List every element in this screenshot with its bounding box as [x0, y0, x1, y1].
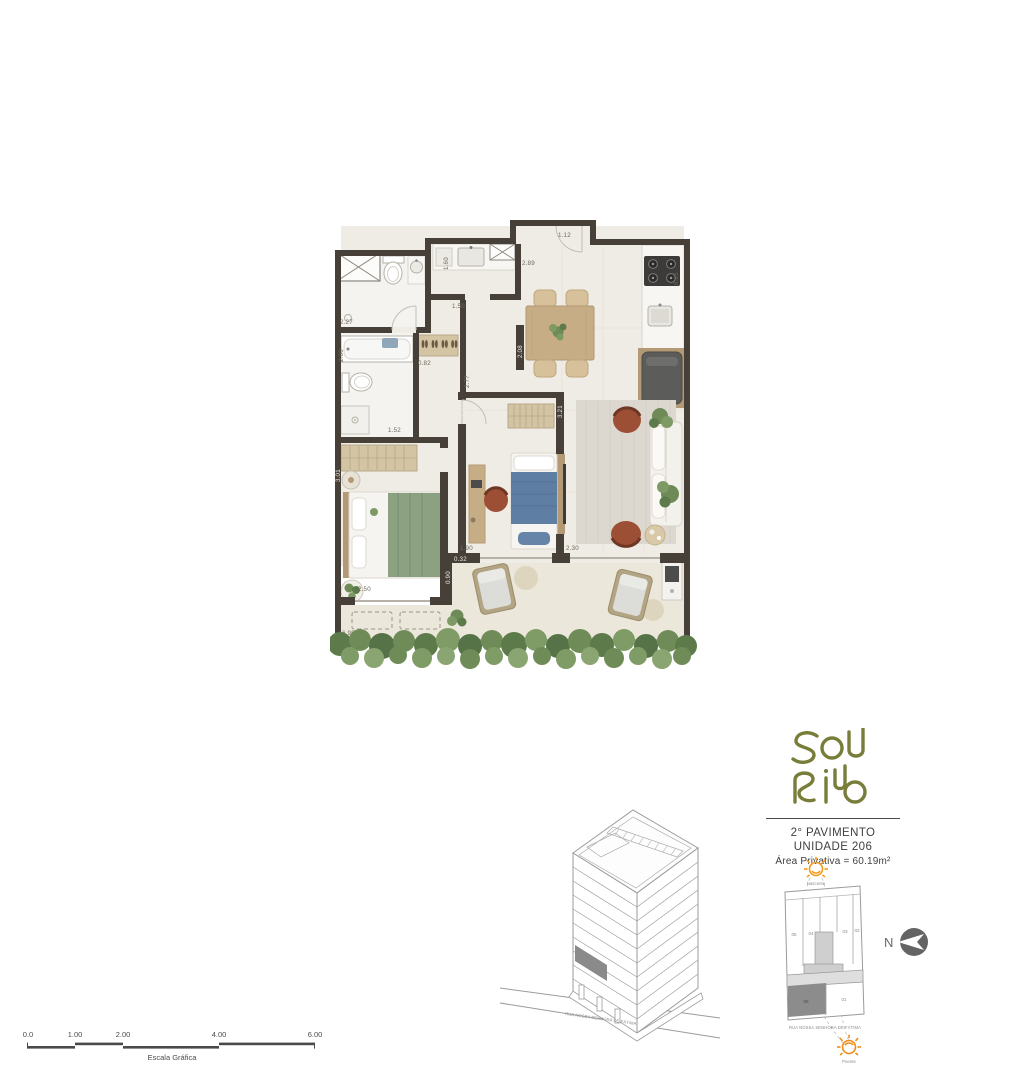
- scale-bar: [27, 1043, 315, 1049]
- dim-label: 2.30: [566, 545, 579, 552]
- logo-letter-u: [835, 766, 845, 789]
- dim-label: 1.52: [388, 427, 401, 434]
- laundry-sink: [458, 248, 484, 266]
- unit-number: 03: [842, 929, 848, 934]
- dim-label: 3.10: [459, 405, 466, 418]
- dim-label: 3.21: [557, 405, 564, 418]
- unit-label: UNIDADE 206: [758, 840, 908, 854]
- dining-chair: [566, 290, 588, 307]
- building-drawing: RUA NOSSA SENHORA DE FÁTIMA: [495, 785, 730, 1055]
- dim-label: 2.00: [338, 349, 345, 362]
- single-bed: [511, 453, 557, 549]
- dining-chair: [534, 360, 556, 377]
- pillow: [514, 456, 554, 470]
- logo-letter-s: [793, 733, 817, 762]
- armchair: [613, 407, 641, 433]
- desk-chair: [484, 488, 508, 512]
- unit-number-highlighted: 06: [803, 999, 809, 1004]
- headboard: [343, 492, 349, 578]
- core: [815, 932, 833, 966]
- nightstand: [342, 471, 360, 489]
- towel: [382, 338, 398, 348]
- armchair: [611, 521, 641, 547]
- dim-label: 2.89: [522, 260, 535, 267]
- scale-tick: 4.00: [212, 1030, 227, 1039]
- scale-tick: 1.00: [68, 1030, 83, 1039]
- info-panel: SOL RIO 2° PAVIMENTO UNIDADE 206 Área Pr…: [758, 728, 908, 867]
- dim-label: 0.32: [454, 556, 467, 563]
- north-arrow-icon: [898, 928, 928, 956]
- sun-nascente-icon: [804, 857, 828, 877]
- dim-label: 2.77: [464, 375, 471, 388]
- pillow: [352, 536, 366, 568]
- grill-counter: [662, 562, 682, 600]
- laptop: [471, 480, 482, 488]
- bed-plant-deco: [370, 508, 378, 516]
- sofa: [650, 422, 682, 526]
- dim-label: 1.90: [460, 545, 473, 552]
- scale-caption: Escala Gráfica: [148, 1053, 198, 1062]
- logo-letter-o2: [845, 782, 865, 802]
- sun-nascente-label: Nascente: [807, 881, 826, 886]
- toilet: [342, 373, 372, 392]
- scale-tick: 0.0: [23, 1030, 33, 1039]
- round-rug: [514, 566, 538, 590]
- blue-duvet: [511, 472, 557, 524]
- dim-label: 1.12: [558, 232, 571, 239]
- sol-rio-logo: SOL RIO: [789, 728, 877, 806]
- key-plan-outline: [785, 886, 864, 1020]
- scale-ticks: 0.0 1.00 2.00 4.00 6.00: [23, 1030, 323, 1039]
- green-blanket: [388, 493, 441, 577]
- dim-label: 1.50: [452, 303, 465, 310]
- north-label: N: [884, 935, 893, 950]
- key-plan-street-label: RUA NOSSA SENHORA DE FÁTIMA: [789, 1025, 861, 1030]
- unit-number: 04: [808, 931, 814, 936]
- side-table: [645, 525, 665, 545]
- unit-number: 02: [854, 928, 860, 933]
- logo-letter-r: [795, 773, 814, 802]
- logo-letter-o: [822, 738, 842, 758]
- unit-number: 05: [791, 932, 797, 937]
- logo-letter-l: [849, 729, 863, 756]
- logo-i-dot: [824, 769, 828, 773]
- unit-number: 01: [841, 997, 847, 1002]
- dining-chair: [534, 290, 556, 307]
- sun-poente-label: Poente: [842, 1059, 856, 1064]
- scale-tick: 6.00: [308, 1030, 323, 1039]
- bathtub: [341, 336, 413, 362]
- tower: [569, 810, 703, 1041]
- site-key-plan: Nascente 05 04 03 02 06 01 RUA NOSS: [760, 856, 895, 1080]
- divider: [766, 818, 900, 819]
- dim-label: 2.50: [358, 586, 371, 593]
- dim-label: 6.25: [673, 272, 680, 285]
- floor-plan: 1.12 2.89 6.25 1.60 1.50 2.27 2.00 0.82 …: [330, 210, 705, 690]
- floor-label: 2° PAVIMENTO: [758, 826, 908, 840]
- sun-poente-icon: [837, 1035, 861, 1055]
- kitchen-sink: [648, 304, 672, 327]
- dim-label: 2.08: [517, 345, 524, 358]
- pillow: [352, 498, 366, 530]
- dining-chair: [566, 360, 588, 377]
- tv: [563, 464, 566, 524]
- dim-label: 0.90: [445, 571, 452, 584]
- dim-label: 0.82: [418, 360, 431, 367]
- graphic-scale: 0.0 1.00 2.00 4.00 6.00 Escala Gráfica: [20, 1025, 330, 1067]
- desk: [469, 465, 485, 543]
- kitchen: [638, 245, 686, 408]
- dim-label: 1.60: [443, 257, 450, 270]
- bolster: [518, 532, 550, 545]
- double-bed: [343, 492, 441, 578]
- shoe-cabinet: [418, 335, 458, 356]
- compass: N: [878, 918, 938, 968]
- washbasin: [408, 256, 425, 284]
- dim-label: 2.27: [340, 319, 353, 326]
- floor-plan-sheet: 1.12 2.89 6.25 1.60 1.50 2.27 2.00 0.82 …: [0, 0, 1018, 1080]
- dim-label: 3.01: [335, 469, 342, 482]
- scale-tick: 2.00: [116, 1030, 131, 1039]
- shower: [341, 406, 369, 434]
